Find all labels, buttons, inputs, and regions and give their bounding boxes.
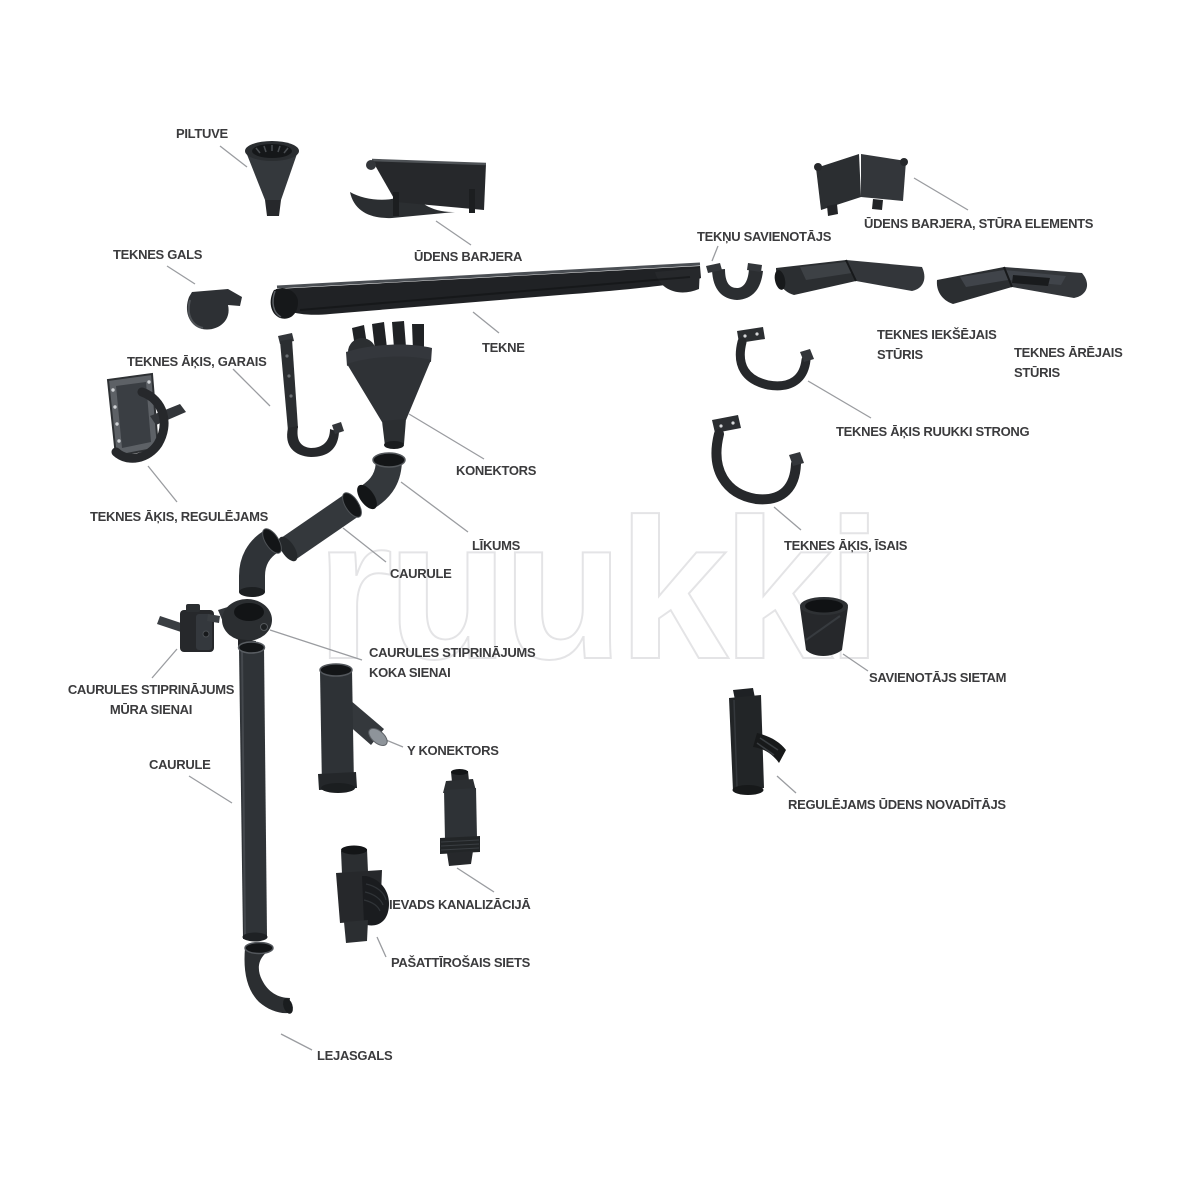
label-pasattirosais-siets: PAŠATTĪROŠAIS SIETS <box>391 953 530 973</box>
pasattirosais-siets-image <box>336 846 389 944</box>
tekne-image <box>271 264 701 319</box>
label-udens-barjera-stura-elements: ŪDENS BARJERA, STŪRA ELEMENTS <box>864 214 1093 234</box>
konektors-image <box>346 321 432 449</box>
regulejams-udens-novaditajs-image <box>729 688 786 795</box>
label-savienotajs-sietam: SAVIENOTĀJS SIETAM <box>869 668 1006 688</box>
label-caurules-stiprinajums-mura-sienai: CAURULES STIPRINĀJUMS MŪRA SIENAI <box>58 680 244 720</box>
label-piltuve: PILTUVE <box>176 124 228 144</box>
label-udens-barjera: ŪDENS BARJERA <box>414 247 522 267</box>
teknes-arejais-sturis-image <box>937 267 1087 304</box>
label-teknes-gals: TEKNES GALS <box>113 245 202 265</box>
gutter-parts-diagram: ruukki <box>0 0 1200 1200</box>
label-y-konektors: Y KONEKTORS <box>407 741 499 761</box>
parts-artwork: ruukki <box>0 0 1200 1200</box>
savienotajs-sietam-image <box>800 597 848 656</box>
label-teknes-akis-regulejams: TEKNES ĀĶIS, REGULĒJAMS <box>90 507 268 527</box>
label-regulejams-udens-novaditajs: REGULĒJAMS ŪDENS NOVADĪTĀJS <box>788 795 1006 815</box>
teknes-akis-garais-image <box>278 333 344 457</box>
udens-barjera-stura-elements-image <box>814 154 908 216</box>
label-teknes-akis-isais: TEKNES ĀĶIS, ĪSAIS <box>784 536 907 556</box>
likums-lower-image <box>239 526 285 597</box>
label-teknu-savienotajs: TEKŅU SAVIENOTĀJS <box>697 227 831 247</box>
label-teknes-ieksejais-sturis: TEKNES IEKŠĒJAIS STŪRIS <box>877 325 996 365</box>
label-ievads-kanalizacija: IEVADS KANALIZĀCIJĀ <box>389 895 530 915</box>
teknes-gals-image <box>187 289 242 330</box>
label-caurule-upper: CAURULE <box>390 564 451 584</box>
label-caurule-lower: CAURULE <box>149 755 210 775</box>
teknes-akis-ruukki-strong-image <box>737 327 814 386</box>
teknes-ieksejais-sturis-image <box>773 260 924 295</box>
label-teknes-arejais-sturis: TEKNES ĀRĒJAIS STŪRIS <box>1014 343 1123 383</box>
lejasgals-image <box>245 943 295 1015</box>
caurules-stiprinajums-koka-sienai-image <box>207 599 272 649</box>
label-teknes-akis-garais: TEKNES ĀĶIS, GARAIS <box>127 352 266 372</box>
caurules-stiprinajums-mura-sienai-image <box>157 604 214 652</box>
label-likums: LĪKUMS <box>472 536 520 556</box>
udens-barjera-image <box>350 160 486 218</box>
label-teknes-akis-ruukki-strong: TEKNES ĀĶIS RUUKKI STRONG <box>836 422 1029 442</box>
piltuve-image <box>245 141 299 216</box>
label-caurules-stiprinajums-koka-sienai: CAURULES STIPRINĀJUMS KOKA SIENAI <box>369 643 535 683</box>
label-lejasgals: LEJASGALS <box>317 1046 392 1066</box>
teknu-savienotajs-image <box>706 263 763 300</box>
label-tekne: TEKNE <box>482 338 525 358</box>
label-konektors: KONEKTORS <box>456 461 536 481</box>
ievads-kanalizacija-image <box>440 769 480 866</box>
teknes-akis-regulejams-image <box>108 374 186 458</box>
